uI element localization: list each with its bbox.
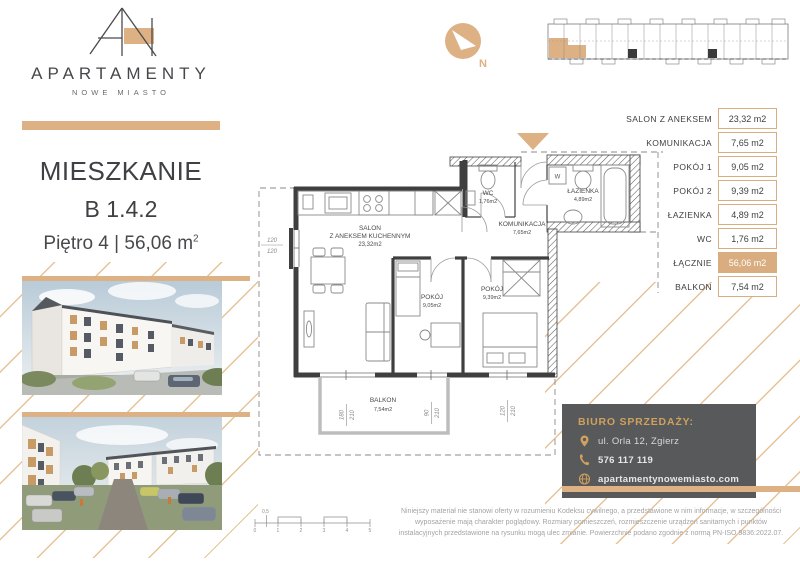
svg-text:4,89m2: 4,89m2 — [574, 197, 592, 203]
svg-text:Z ANEKSEM KUCHENNYM: Z ANEKSEM KUCHENNYM — [330, 233, 411, 240]
dimension-window-2: 90 210 — [425, 402, 442, 424]
svg-text:210: 210 — [350, 409, 356, 421]
svg-text:9,05m2: 9,05m2 — [423, 303, 441, 309]
sofa — [366, 303, 390, 361]
svg-text:0: 0 — [254, 528, 257, 534]
table-row-value-total: 56,06 m2 — [718, 252, 777, 273]
address-row: ul. Orla 12, Zgierz — [578, 435, 756, 447]
svg-text:90: 90 — [425, 409, 431, 416]
floor-label: Piętro 4 — [43, 233, 108, 254]
bathroom-fixtures — [549, 165, 629, 227]
floor-area-line: Piętro 4 | 56,06 m2 — [21, 233, 221, 255]
globe-icon — [578, 473, 591, 485]
window-frame — [289, 228, 293, 269]
svg-text:120: 120 — [267, 238, 278, 244]
table-row-value: 23,32 m2 — [718, 108, 777, 129]
scale-bar: 0 0,5 1 2 3 4 5 — [250, 503, 380, 537]
legal-disclaimer: Niniejszy materiał nie stanowi oferty w … — [398, 506, 784, 540]
location-pin-icon — [578, 435, 591, 447]
svg-text:210: 210 — [435, 407, 441, 419]
svg-text:180: 180 — [340, 409, 346, 420]
area-value: 56,06 m — [124, 233, 193, 254]
separator: | — [114, 233, 119, 254]
sales-office-title: BIURO SPRZEDAŻY: — [578, 416, 756, 428]
website-row: apartamentynowemiasto.com — [578, 473, 756, 485]
svg-text:4: 4 — [346, 528, 349, 534]
website-text: apartamentynowemiasto.com — [598, 474, 739, 485]
phone-row: 576 117 119 — [578, 454, 756, 466]
svg-text:WC: WC — [483, 190, 494, 197]
svg-text:9,39m2: 9,39m2 — [483, 295, 501, 301]
logo-accent-rect — [124, 28, 154, 44]
desk-chair — [420, 323, 460, 347]
dining-table — [311, 248, 345, 293]
phone-icon — [578, 454, 591, 466]
listing-heading: MIESZKANIE — [21, 156, 221, 187]
svg-text:POKÓJ: POKÓJ — [481, 284, 503, 293]
building-photo-2 — [22, 417, 222, 530]
svg-text:0,5: 0,5 — [262, 509, 269, 515]
hatched-walls — [450, 155, 640, 377]
brand-subtitle: NOWE MIASTO — [21, 88, 221, 97]
svg-text:1: 1 — [277, 528, 280, 534]
svg-text:7,54m2: 7,54m2 — [374, 407, 392, 413]
table-row-value: 7,54 m2 — [718, 276, 777, 297]
gold-divider — [22, 121, 220, 130]
svg-text:POKÓJ: POKÓJ — [421, 292, 443, 301]
table-row-value: 4,89 m2 — [718, 204, 777, 225]
windows-bottom — [320, 370, 527, 380]
sales-office-panel: BIURO SPRZEDAŻY: ul. Orla 12, Zgierz 576… — [562, 404, 756, 498]
entrance-arrow-icon — [517, 133, 549, 150]
contact-accent-bar — [562, 486, 800, 492]
svg-text:120: 120 — [267, 249, 278, 255]
brand-name: APARTAMENTY — [21, 64, 221, 84]
svg-text:SALON: SALON — [359, 225, 381, 232]
stair-core-icon — [628, 49, 637, 58]
flyer-page: APARTAMENTY NOWE MIASTO MIESZKANIE B 1.4… — [0, 0, 800, 566]
compass: N — [438, 12, 496, 76]
table-row-value: 9,39 m2 — [718, 180, 777, 201]
compass-north-label: N — [479, 58, 487, 70]
wardrobe — [503, 260, 540, 296]
dimension-window-3: 120 210 — [501, 400, 518, 422]
interior-walls — [393, 258, 549, 375]
svg-text:3: 3 — [323, 528, 326, 534]
listing-title-block: MIESZKANIE B 1.4.2 Piętro 4 | 56,06 m2 — [21, 156, 221, 255]
bed-double — [483, 313, 537, 367]
table-row-label: SALON Z ANEKSEM — [594, 114, 712, 124]
table-row-value: 7,65 m2 — [718, 132, 777, 153]
svg-text:120: 120 — [501, 405, 507, 416]
svg-text:BALKON: BALKON — [370, 397, 397, 404]
bed-single — [396, 261, 420, 316]
svg-text:7,65m2: 7,65m2 — [513, 230, 531, 236]
unit-number: B 1.4.2 — [21, 196, 221, 223]
table-row-value: 9,05 m2 — [718, 156, 777, 177]
building-photo-1 — [22, 281, 222, 395]
phone-text: 576 117 119 — [598, 455, 653, 466]
svg-text:210: 210 — [511, 405, 517, 417]
washer-label: W — [555, 175, 561, 181]
svg-text:23,32m2: 23,32m2 — [358, 242, 382, 248]
tv-cabinet — [304, 311, 314, 347]
svg-text:ŁAZIENKA: ŁAZIENKA — [567, 188, 599, 195]
kitchen-counter — [298, 191, 433, 215]
dimension-window-1: 180 210 — [340, 404, 357, 426]
area-sup: 2 — [193, 234, 199, 245]
dimension-left: 120 120 — [261, 238, 283, 255]
svg-text:KOMUNIKACJA: KOMUNIKACJA — [499, 221, 547, 228]
svg-text:1,76m2: 1,76m2 — [479, 199, 497, 205]
address-text: ul. Orla 12, Zgierz — [598, 436, 679, 447]
balcony-outline — [320, 377, 448, 433]
building-overview-plan — [540, 14, 792, 76]
stair-core-icon — [708, 49, 717, 58]
svg-text:2: 2 — [300, 528, 303, 534]
table-row-value: 1,76 m2 — [718, 228, 777, 249]
shaft-box — [435, 191, 461, 215]
svg-text:5: 5 — [369, 528, 372, 534]
logo-mark — [82, 6, 162, 60]
